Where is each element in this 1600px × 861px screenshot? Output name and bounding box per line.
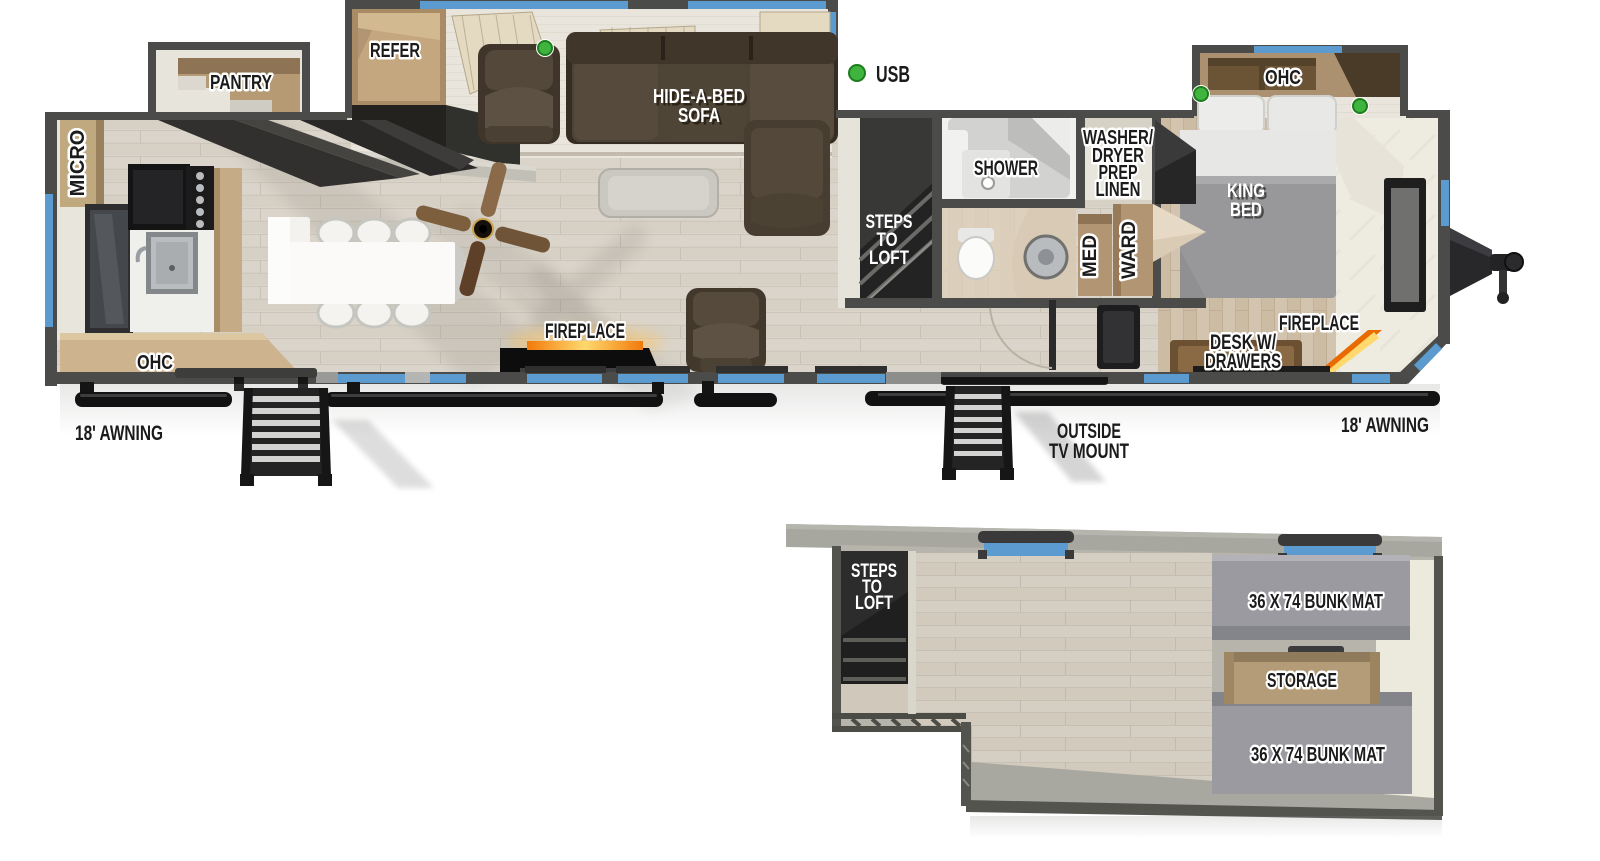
svg-text:18' AWNING: 18' AWNING bbox=[1341, 414, 1429, 437]
svg-text:WARD: WARD bbox=[1119, 221, 1140, 279]
svg-text:REFER: REFER bbox=[370, 40, 420, 62]
svg-text:FIREPLACE: FIREPLACE bbox=[545, 320, 625, 343]
svg-text:SOFA: SOFA bbox=[678, 105, 720, 127]
svg-text:BED: BED bbox=[1230, 200, 1262, 221]
svg-text:36 X 74 BUNK MAT: 36 X 74 BUNK MAT bbox=[1251, 744, 1385, 766]
svg-text:DRAWERS: DRAWERS bbox=[1205, 350, 1281, 373]
svg-text:36 X 74 BUNK MAT: 36 X 74 BUNK MAT bbox=[1249, 591, 1383, 613]
svg-text:18' AWNING: 18' AWNING bbox=[75, 422, 163, 445]
svg-text:TV MOUNT: TV MOUNT bbox=[1049, 440, 1129, 463]
svg-text:PANTRY: PANTRY bbox=[210, 72, 273, 94]
svg-text:KING: KING bbox=[1227, 181, 1265, 202]
svg-text:USB: USB bbox=[876, 61, 910, 87]
svg-text:LOFT: LOFT bbox=[869, 248, 909, 269]
svg-text:OHC: OHC bbox=[1265, 67, 1301, 89]
svg-text:MED: MED bbox=[1080, 235, 1101, 277]
svg-text:MICRO: MICRO bbox=[67, 130, 89, 197]
svg-text:FIREPLACE: FIREPLACE bbox=[1279, 312, 1359, 335]
svg-text:STORAGE: STORAGE bbox=[1267, 670, 1337, 692]
svg-text:LOFT: LOFT bbox=[855, 593, 893, 614]
svg-text:SHOWER: SHOWER bbox=[974, 157, 1038, 180]
svg-text:LINEN: LINEN bbox=[1096, 179, 1141, 201]
svg-text:OHC: OHC bbox=[137, 352, 173, 374]
